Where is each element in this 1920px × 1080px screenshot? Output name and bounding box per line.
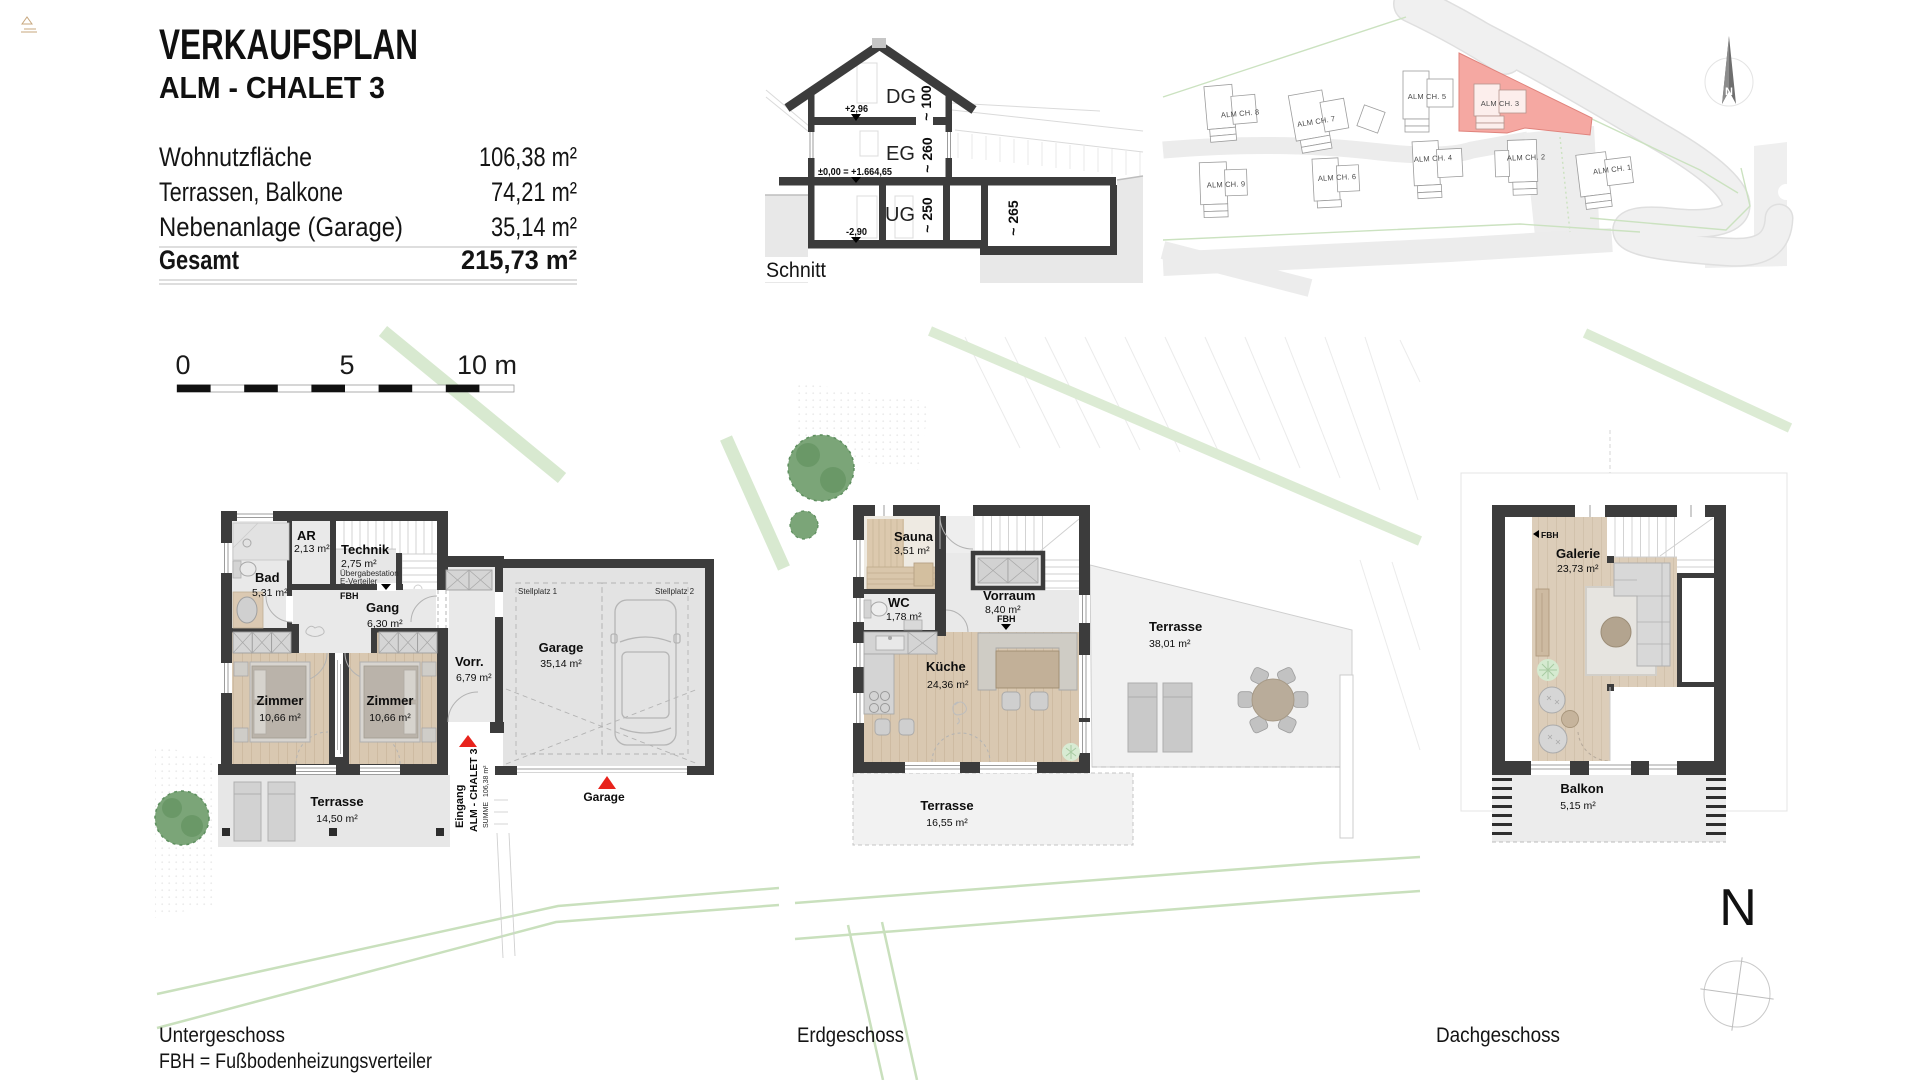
svg-text:Stellplatz 1: Stellplatz 1 bbox=[518, 587, 558, 596]
svg-text:Zimmer: Zimmer bbox=[367, 693, 414, 708]
svg-text:FBH = Fußbodenheizungsverteile: FBH = Fußbodenheizungsverteiler bbox=[159, 1050, 432, 1073]
svg-text:FBH: FBH bbox=[997, 614, 1016, 624]
svg-text:Dachgeschoss: Dachgeschoss bbox=[1436, 1024, 1560, 1047]
svg-text:Terrasse: Terrasse bbox=[1149, 619, 1202, 634]
svg-text:14,50 m²: 14,50 m² bbox=[316, 813, 358, 825]
svg-text:5: 5 bbox=[339, 350, 354, 380]
svg-text:6,30 m²: 6,30 m² bbox=[367, 618, 403, 630]
svg-text:Terrasse: Terrasse bbox=[920, 798, 973, 813]
svg-text:35,14 m²: 35,14 m² bbox=[540, 658, 582, 670]
svg-text:ALM - CHALET 3: ALM - CHALET 3 bbox=[468, 748, 480, 832]
svg-text:106,38 m²: 106,38 m² bbox=[483, 765, 490, 797]
svg-text:DG: DG bbox=[886, 86, 916, 108]
svg-text:Bad: Bad bbox=[255, 570, 280, 585]
svg-text:~ 250: ~ 250 bbox=[919, 197, 935, 233]
svg-text:EG: EG bbox=[886, 143, 915, 165]
svg-text:Gang: Gang bbox=[366, 600, 399, 615]
svg-text:N: N bbox=[1725, 86, 1733, 98]
svg-text:5,15 m²: 5,15 m² bbox=[1560, 800, 1596, 812]
svg-text:Untergeschoss: Untergeschoss bbox=[159, 1024, 285, 1047]
svg-text:10,66 m²: 10,66 m² bbox=[369, 712, 411, 724]
svg-text:FBH: FBH bbox=[1541, 530, 1558, 540]
svg-text:Gesamt: Gesamt bbox=[159, 245, 239, 275]
svg-text:Küche: Küche bbox=[926, 659, 966, 674]
svg-text:35,14 m²: 35,14 m² bbox=[491, 212, 577, 242]
svg-text:ALM CH. 3: ALM CH. 3 bbox=[1481, 99, 1519, 108]
svg-text:Eingang: Eingang bbox=[454, 785, 466, 828]
svg-text:0: 0 bbox=[175, 350, 190, 380]
svg-text:6,79 m²: 6,79 m² bbox=[456, 672, 492, 684]
svg-text:~ 260: ~ 260 bbox=[919, 137, 935, 173]
svg-text:10,66 m²: 10,66 m² bbox=[259, 712, 301, 724]
svg-text:Vorr.: Vorr. bbox=[455, 654, 484, 669]
svg-text:Terrassen, Balkone: Terrassen, Balkone bbox=[159, 177, 343, 207]
svg-text:Galerie: Galerie bbox=[1556, 546, 1600, 561]
svg-text:23,73 m²: 23,73 m² bbox=[1557, 563, 1599, 575]
svg-text:UG: UG bbox=[885, 204, 915, 226]
svg-text:SUMME: SUMME bbox=[483, 802, 490, 828]
svg-text:~ 100: ~ 100 bbox=[918, 85, 934, 121]
svg-text:WC: WC bbox=[888, 595, 910, 610]
svg-text:N: N bbox=[1719, 879, 1757, 937]
svg-text:Terrasse: Terrasse bbox=[310, 794, 363, 809]
svg-text:2,13 m²: 2,13 m² bbox=[294, 543, 330, 555]
svg-text:Wohnutzfläche: Wohnutzfläche bbox=[159, 142, 312, 172]
svg-text:215,73 m²: 215,73 m² bbox=[461, 245, 577, 275]
svg-text:24,36 m²: 24,36 m² bbox=[927, 679, 969, 691]
svg-text:Garage: Garage bbox=[583, 790, 625, 804]
svg-text:E-Verteiler: E-Verteiler bbox=[340, 577, 378, 586]
svg-text:ALM CH. 2: ALM CH. 2 bbox=[1507, 152, 1546, 162]
svg-text:3,51 m²: 3,51 m² bbox=[894, 545, 930, 557]
svg-text:±0,00 = +1.664,65: ±0,00 = +1.664,65 bbox=[818, 166, 892, 178]
svg-text:5,31 m²: 5,31 m² bbox=[252, 587, 288, 599]
svg-text:Vorraum: Vorraum bbox=[983, 588, 1036, 603]
svg-text:Nebenanlage (Garage): Nebenanlage (Garage) bbox=[159, 212, 403, 242]
svg-text:38,01 m²: 38,01 m² bbox=[1149, 638, 1191, 650]
svg-text:Garage: Garage bbox=[539, 640, 584, 655]
svg-text:ALM - CHALET 3: ALM - CHALET 3 bbox=[159, 70, 385, 105]
svg-text:FBH: FBH bbox=[340, 591, 359, 601]
svg-text:VERKAUFSPLAN: VERKAUFSPLAN bbox=[159, 21, 418, 69]
svg-text:AR: AR bbox=[297, 528, 316, 543]
svg-text:Balkon: Balkon bbox=[1560, 781, 1603, 796]
svg-text:16,55 m²: 16,55 m² bbox=[926, 817, 968, 829]
svg-text:Erdgeschoss: Erdgeschoss bbox=[797, 1024, 904, 1047]
svg-text:+2,96: +2,96 bbox=[845, 103, 868, 115]
svg-text:Stellplatz 2: Stellplatz 2 bbox=[655, 587, 695, 596]
svg-text:~ 265: ~ 265 bbox=[1005, 200, 1021, 236]
svg-text:Sauna: Sauna bbox=[894, 529, 934, 544]
svg-text:ALM CH. 5: ALM CH. 5 bbox=[1408, 92, 1446, 101]
svg-text:ALM CH. 9: ALM CH. 9 bbox=[1207, 179, 1246, 189]
svg-text:-2,90: -2,90 bbox=[846, 226, 867, 238]
svg-text:Technik: Technik bbox=[341, 542, 390, 557]
svg-text:74,21 m²: 74,21 m² bbox=[491, 177, 577, 207]
svg-text:Schnitt: Schnitt bbox=[766, 259, 826, 282]
svg-text:Zimmer: Zimmer bbox=[257, 693, 304, 708]
svg-text:10 m: 10 m bbox=[457, 350, 517, 380]
svg-text:106,38 m²: 106,38 m² bbox=[479, 142, 577, 172]
